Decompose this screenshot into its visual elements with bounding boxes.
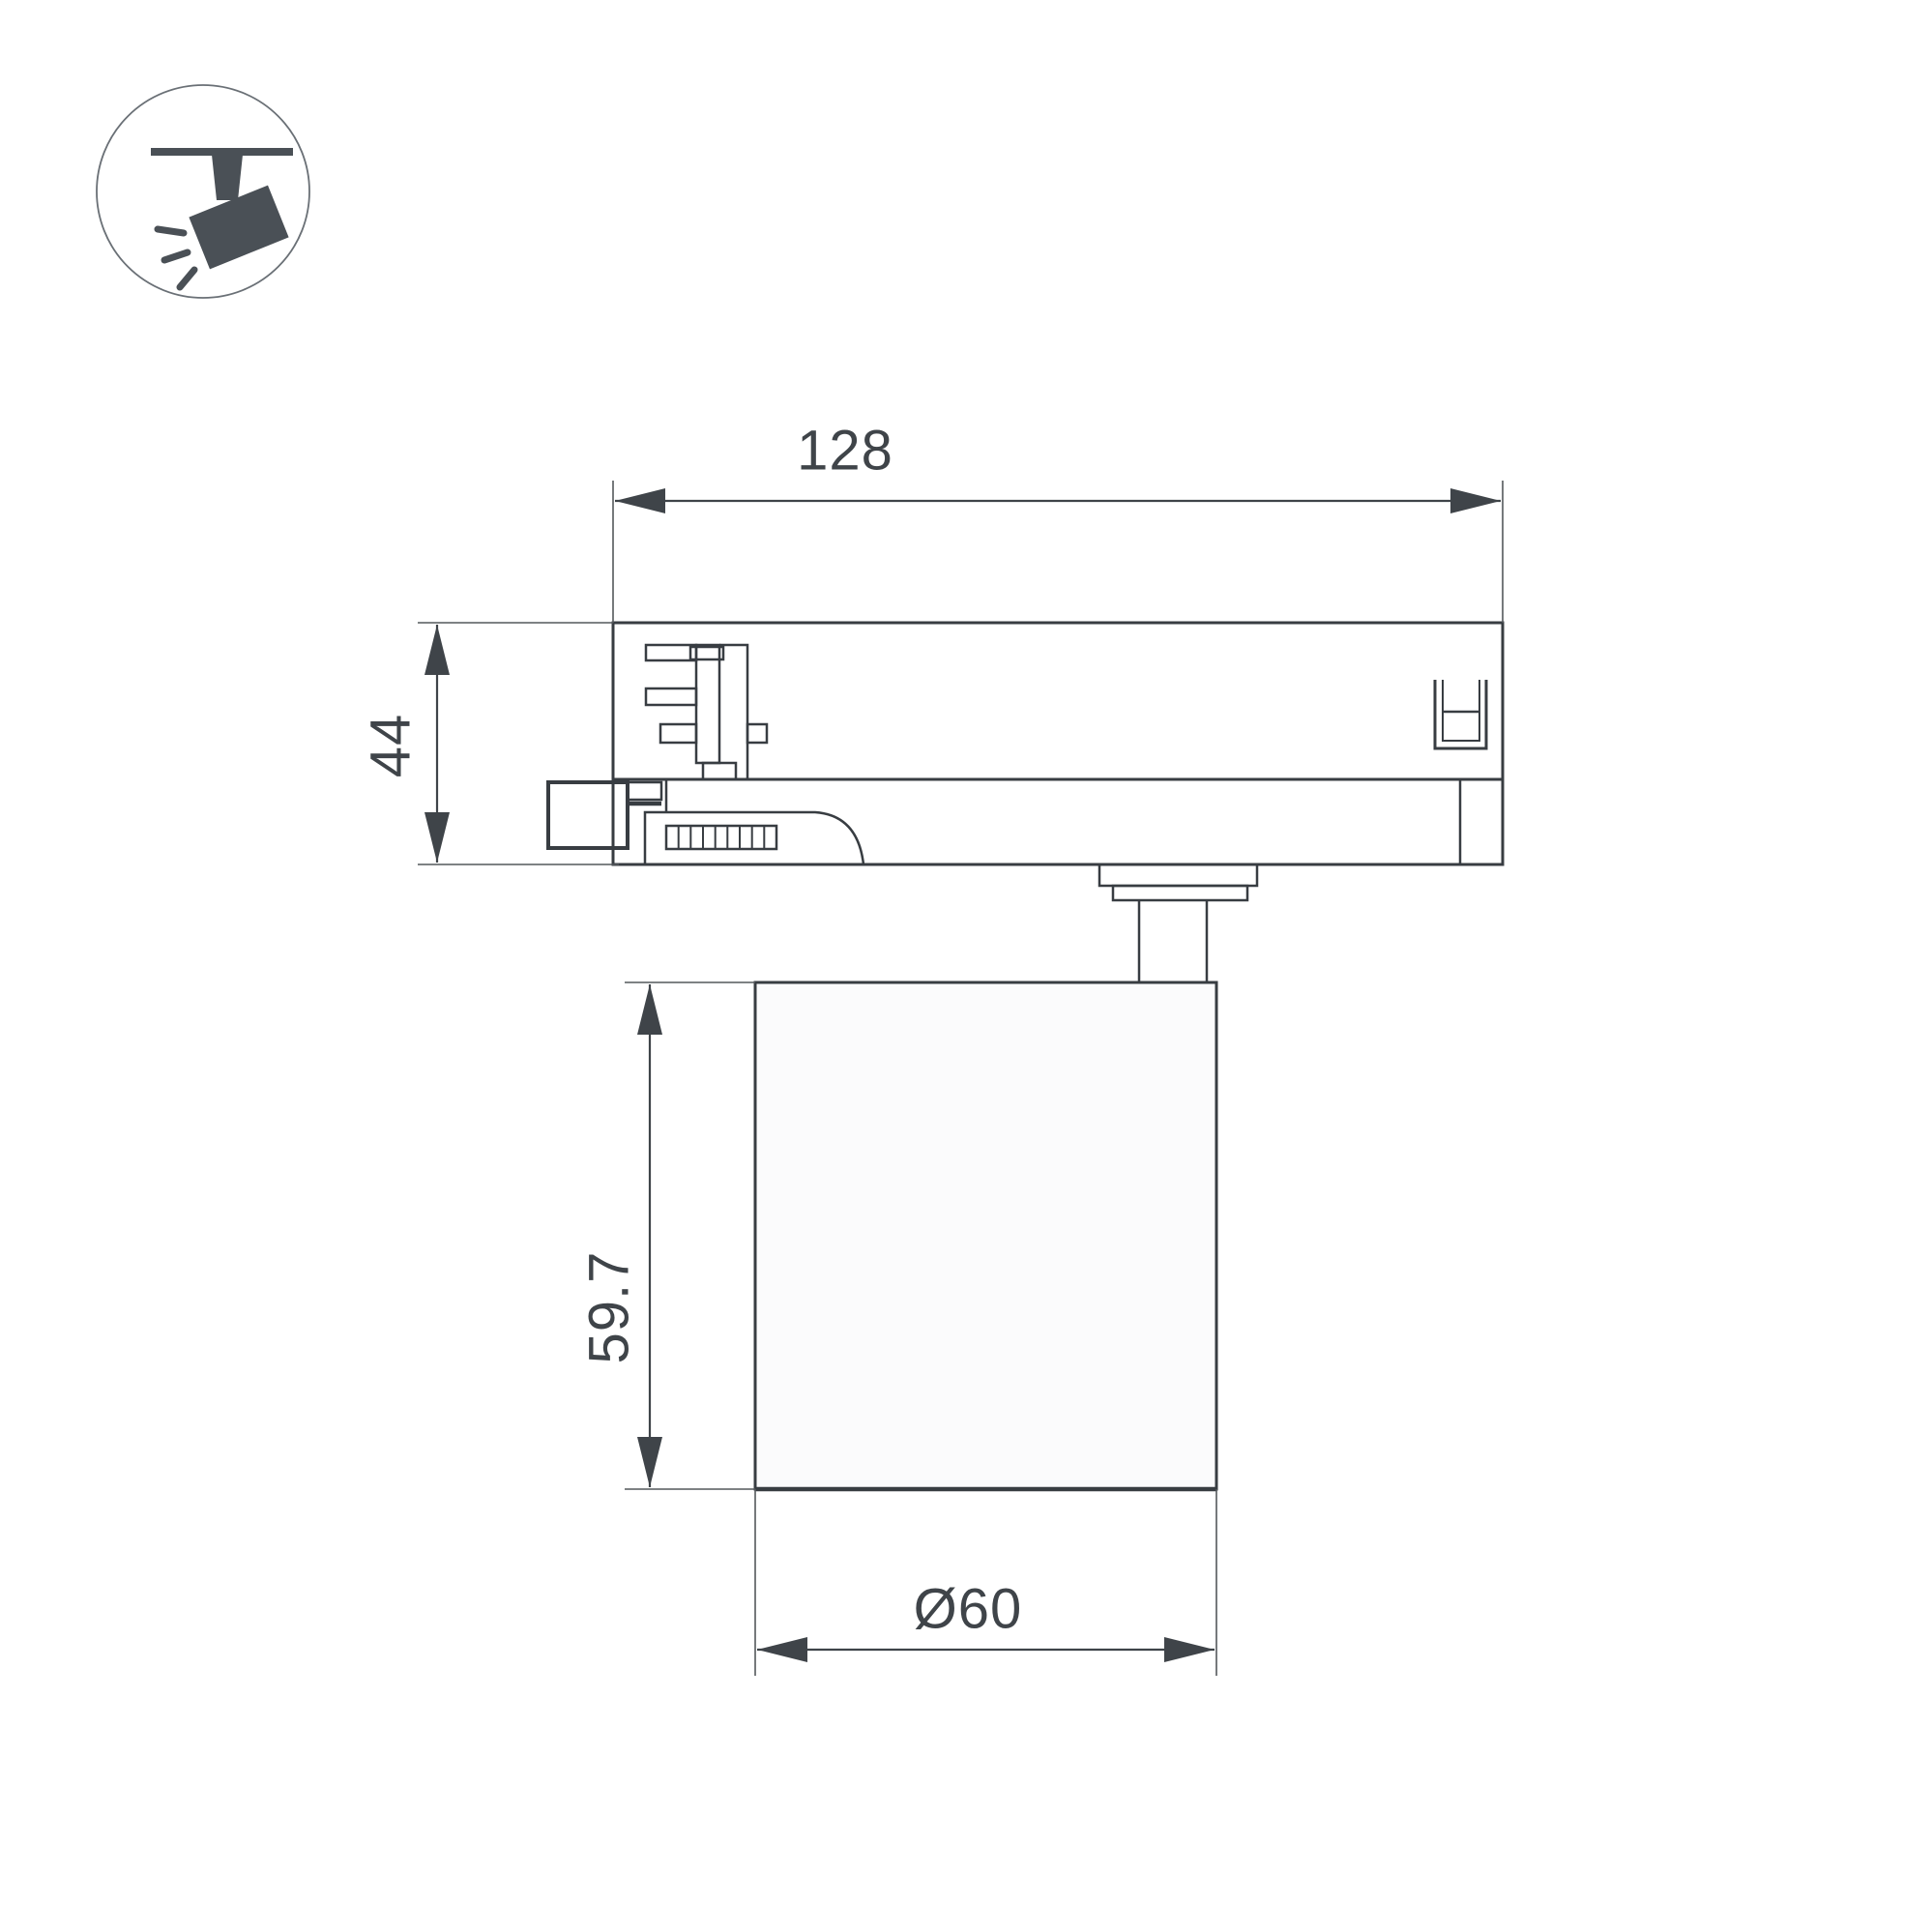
contact-bar-1	[646, 645, 696, 660]
contact-bar-3	[660, 724, 696, 743]
dimension-label-adapter-height: 44	[360, 714, 423, 778]
connector-tab	[747, 724, 767, 743]
power-connector	[646, 645, 767, 779]
arrowhead-down	[637, 1437, 662, 1487]
dimension-label-body-height: 59.7	[578, 1251, 641, 1364]
dimension-d60: Ø60	[755, 1489, 1216, 1676]
connector-post	[696, 645, 719, 763]
icon-circle	[97, 85, 309, 298]
dimension-128: 128	[613, 420, 1503, 624]
retainer-clip	[1435, 680, 1486, 748]
arrowhead-up	[424, 625, 450, 675]
lamp-body	[755, 982, 1216, 1489]
contact-bar-2	[646, 688, 696, 705]
fixture-stem	[212, 155, 243, 200]
dimension-label-width: 128	[797, 420, 893, 483]
arrowhead-left	[615, 488, 665, 513]
arrowhead-left	[757, 1637, 807, 1662]
pivot-mount	[1099, 864, 1257, 982]
mount-disc-lower	[1113, 886, 1247, 900]
clip-inner-u	[1443, 680, 1479, 741]
spotlight-icon	[97, 85, 309, 298]
lever-grip	[666, 826, 776, 849]
adapter-flange-outline	[613, 779, 1503, 864]
lever-grip-ribs	[679, 826, 765, 849]
dimension-59-7: 59.7	[578, 982, 756, 1489]
dimension-drawing: 128 44 59.7 Ø60	[0, 0, 1932, 1932]
drawing-canvas: 128 44 59.7 Ø60	[0, 0, 1932, 1932]
dimension-label-body-diameter: Ø60	[914, 1578, 1023, 1641]
track-adapter	[548, 623, 1503, 982]
latch-box	[548, 782, 628, 848]
dimension-44: 44	[360, 623, 620, 864]
lock-lever	[645, 812, 864, 864]
arrowhead-down	[424, 812, 450, 863]
lamp-outline	[755, 982, 1216, 1489]
arrowhead-right	[1450, 488, 1501, 513]
connector-plate	[719, 645, 747, 779]
arrowhead-right	[1164, 1637, 1215, 1662]
latch-detail	[628, 782, 661, 800]
mount-disc-upper	[1099, 864, 1257, 886]
connector-foot	[703, 763, 736, 779]
lock-latch	[548, 779, 666, 848]
arrowhead-up	[637, 984, 662, 1035]
track-bar	[151, 148, 293, 156]
